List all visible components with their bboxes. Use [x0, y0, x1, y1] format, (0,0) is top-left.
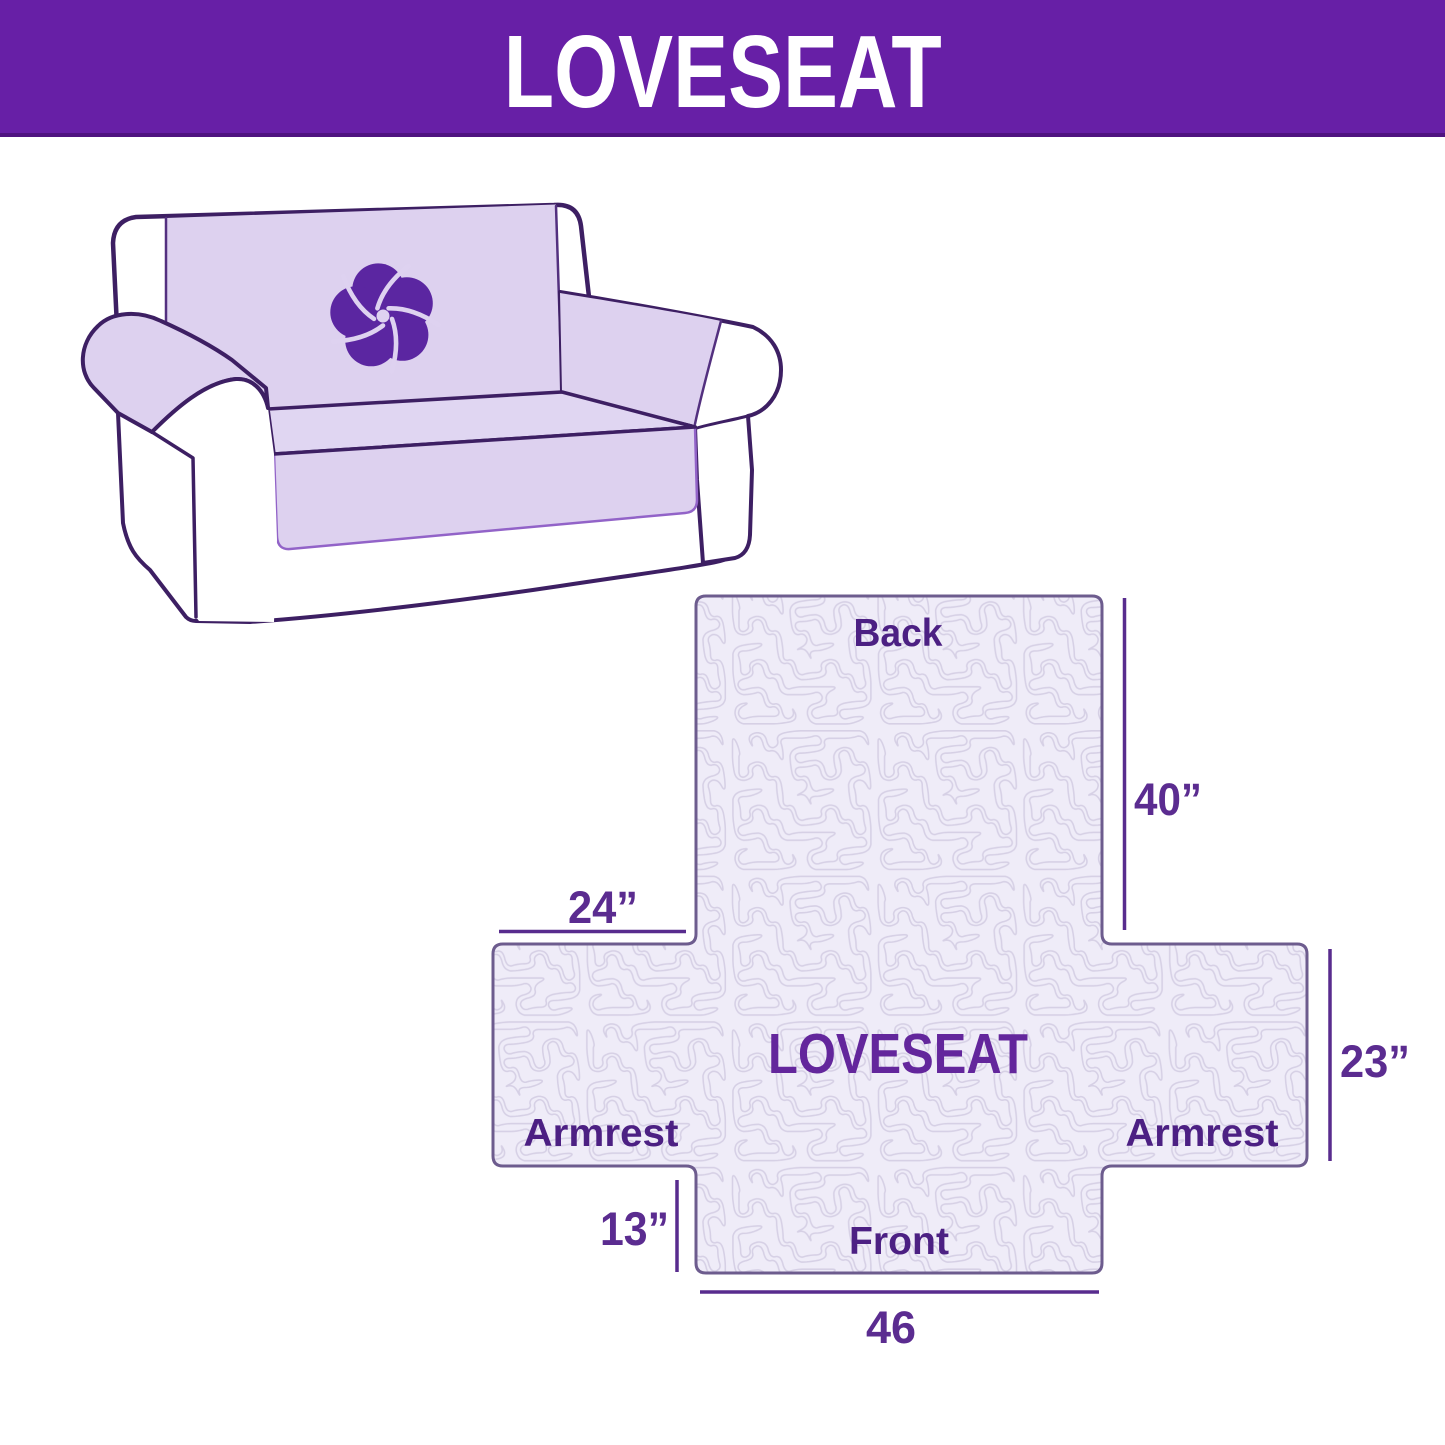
svg-text:Front: Front	[849, 1220, 949, 1263]
svg-text:13”: 13”	[600, 1202, 669, 1255]
svg-text:Armrest: Armrest	[524, 1112, 679, 1155]
svg-text:46: 46	[866, 1302, 916, 1353]
svg-text:24”: 24”	[568, 882, 638, 933]
svg-text:Back: Back	[854, 612, 943, 655]
svg-text:40”: 40”	[1134, 774, 1202, 825]
svg-text:LOVESEAT: LOVESEAT	[768, 1022, 1028, 1086]
svg-text:Armrest: Armrest	[1126, 1112, 1279, 1155]
svg-text:23”: 23”	[1340, 1036, 1410, 1087]
